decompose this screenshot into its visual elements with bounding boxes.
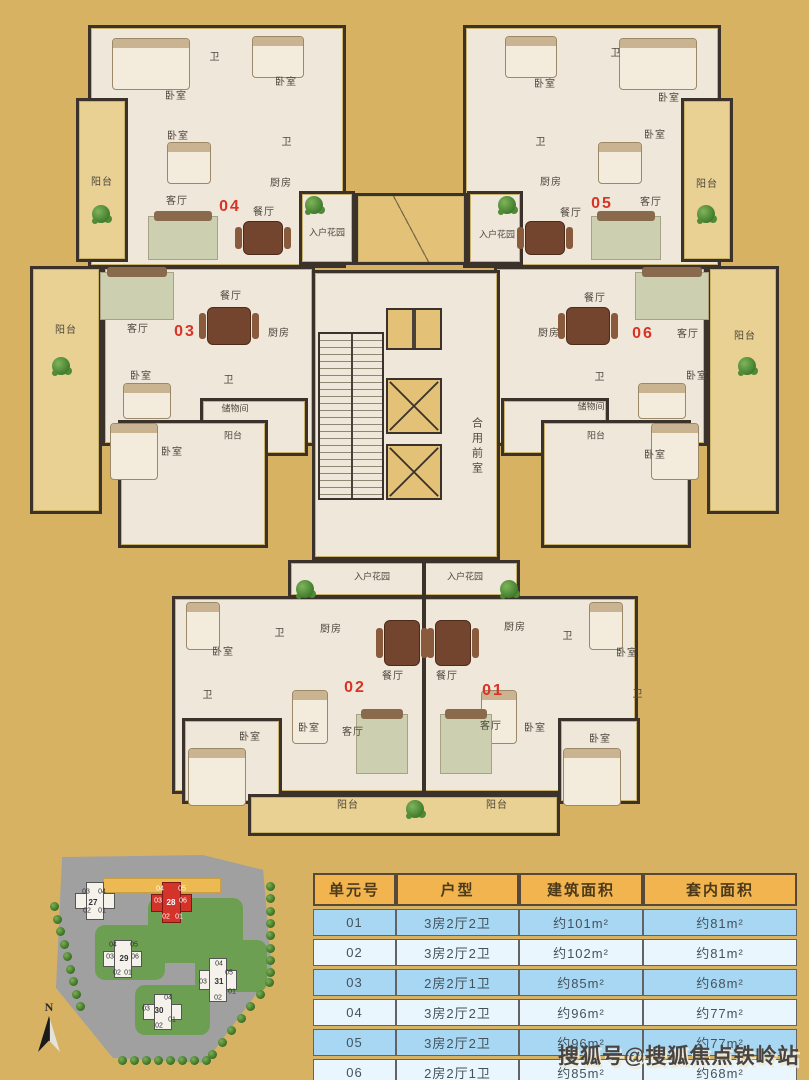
building-number: 28 [167,899,176,907]
bed [186,602,220,650]
table-cell: 3房2厅2卫 [396,909,519,936]
room-label: 餐厅 [436,672,458,682]
unit06-balcony [707,266,779,514]
table-cell: 2房2厅1卫 [396,1059,519,1080]
bed [563,748,621,806]
tree-icon [256,990,265,999]
room-label: 厨房 [268,329,290,339]
dining-table [566,307,610,345]
dining-table [525,221,565,255]
room-label: 入户花园 [447,573,483,582]
room-label: 阳台 [55,326,77,336]
tree-icon [130,1056,139,1065]
room-label: 卧室 [275,78,297,88]
room-label: 客厅 [166,197,188,207]
room-label: 卧室 [161,448,183,458]
room-label: 卧室 [239,733,261,743]
table-cell: 约101m² [519,909,643,936]
plant-icon [498,196,516,214]
plant-icon [500,580,518,598]
tree-icon [266,894,275,903]
room-label: 卫 [633,690,644,700]
compass-n-label: N [36,1000,62,1015]
building-unit-number: 05 [130,942,138,949]
tree-icon [266,968,275,977]
col-header-gross-area: 建筑面积 [519,873,643,906]
table-row: 043房2厅2卫约96m²约77m² [313,999,797,1026]
building-unit-number: 02 [162,914,170,921]
tree-icon [208,1050,217,1059]
building-number: 27 [89,899,98,907]
room-label: 卧室 [298,724,320,734]
room-label: 卧室 [644,451,666,461]
room-label: 客厅 [640,198,662,208]
table-cell: 06 [313,1059,396,1080]
building-number: 30 [155,1007,164,1015]
room-label: 阳台 [224,432,242,441]
compass-north-icon: N [36,1000,62,1052]
room-label: 厨房 [504,623,526,633]
building-unit-number: 02 [113,970,121,977]
table-row: 032房2厅1卫约85m²约68m² [313,969,797,996]
tree-icon [66,965,75,974]
tree-icon [265,978,274,987]
room-label: 客厅 [127,325,149,335]
bed [505,36,557,78]
living-room-rug [100,272,174,320]
building-unit-number: 03 [199,979,207,986]
tree-icon [218,1038,227,1047]
bed [112,38,190,90]
building-unit-number: 04 [109,942,117,949]
elevator-x-icon [388,380,440,432]
room-label: 卧室 [165,92,187,102]
room-label: 厨房 [320,625,342,635]
room-label: 阳台 [486,801,508,811]
table-cell: 3房2厅2卫 [396,999,519,1026]
compass-arrow [36,1016,62,1052]
room-label: 客厅 [480,722,502,732]
building-unit-number: 03 [142,1006,150,1013]
building-unit-number: 04 [164,995,172,1002]
room-label: 卫 [210,53,221,63]
tree-icon [142,1056,151,1065]
building-unit-number: 05 [225,970,233,977]
ramp-area [355,193,467,265]
dining-table [207,307,251,345]
dining-table [384,620,420,666]
tree-icon [118,1056,127,1065]
table-cell: 03 [313,969,396,996]
room-label: 阳台 [734,332,756,342]
room-label: 客厅 [342,728,364,738]
ramp-line [358,196,464,262]
unit-number-label: 02 [344,680,366,696]
unit03-balcony [30,266,102,514]
table-cell: 约77m² [643,999,797,1026]
room-label: 卧室 [524,724,546,734]
room-label: 卧室 [130,372,152,382]
plant-icon [305,196,323,214]
building-unit-number: 06 [131,954,139,961]
room-label: 入户花园 [479,231,515,240]
elevator-2 [386,444,442,500]
dining-table [435,620,471,666]
tree-icon [53,915,62,924]
entry-garden-lower [288,560,520,598]
plant-icon [738,357,756,375]
plant-icon [296,580,314,598]
tree-icon [266,944,275,953]
tree-icon [72,990,81,999]
room-label: 厨房 [540,178,562,188]
bed [123,383,171,419]
building-unit-number: 03 [106,954,114,961]
col-header-unit-number: 单元号 [313,873,396,906]
building-unit-number: 01 [98,908,106,915]
elevator-lobby [386,308,442,350]
tree-icon [154,1056,163,1065]
room-label: 卫 [595,373,606,383]
table-cell: 约85m² [519,969,643,996]
table-cell: 2房2厅1卫 [396,969,519,996]
room-label: 餐厅 [253,208,275,218]
unit-number-label: 03 [174,324,196,340]
living-room-rug [356,714,408,774]
table-cell: 约81m² [643,909,797,936]
building-unit-number: 02 [83,908,91,915]
elevator-1 [386,378,442,434]
table-cell: 3房2厅2卫 [396,1029,519,1056]
building-unit-number: 04 [215,961,223,968]
tree-icon [266,956,275,965]
tree-icon [266,931,275,940]
stairs [318,332,384,500]
unit-number-label: 04 [219,199,241,215]
room-label: 合用前室 [471,417,482,477]
table-row: 013房2厅2卫约101m²约81m² [313,909,797,936]
tree-icon [178,1056,187,1065]
table-cell: 04 [313,999,396,1026]
tree-icon [237,1014,246,1023]
tree-icon [63,952,72,961]
building-unit-number: 04 [156,886,164,893]
floorplan-page: 卧室卧室卧室卫卫阳台客厅厨房餐厅04入户花园卧室卧室卧室卫卫阳台客厅厨房餐厅05… [0,0,809,1080]
units-divider-wall [422,560,426,794]
room-label: 卧室 [616,649,638,659]
building-number: 29 [120,955,129,963]
table-cell: 约96m² [519,999,643,1026]
room-label: 卧室 [534,80,556,90]
building-unit-number: 06 [179,898,187,905]
building-unit-number: 02 [155,1023,163,1030]
table-cell: 05 [313,1029,396,1056]
building-unit-number: 03 [154,898,162,905]
plant-icon [406,800,424,818]
bed [598,142,642,184]
col-header-interior-area: 套内面积 [643,873,797,906]
tree-icon [246,1002,255,1011]
table-cell: 01 [313,909,396,936]
room-label: 入户花园 [309,229,345,238]
living-room-rug [591,216,661,260]
room-label: 储物间 [577,403,604,412]
plant-icon [697,205,715,223]
unit-number-label: 06 [632,326,654,342]
room-label: 卫 [563,632,574,642]
room-label: 阳台 [91,178,113,188]
watermark: 搜狐号@搜狐焦点铁岭站 [558,1040,803,1070]
building-unit-number: 01 [124,970,132,977]
lower-balcony-strip [248,794,560,836]
tree-icon [266,907,275,916]
room-label: 卫 [224,376,235,386]
tree-icon [60,940,69,949]
building-unit-number: 01 [228,989,236,996]
building-unit-number: 04 [98,889,106,896]
table-header-row: 单元号 户型 建筑面积 套内面积 [313,873,797,906]
room-label: 卧室 [644,131,666,141]
building-unit-number: 03 [82,889,90,896]
compass-arrow-dark [38,1016,49,1052]
bed [292,690,328,744]
room-label: 卧室 [589,735,611,745]
room-label: 卫 [282,138,293,148]
room-label: 卫 [536,138,547,148]
room-label: 卧室 [212,648,234,658]
living-room-rug [148,216,218,260]
bed [110,423,158,480]
tree-icon [190,1056,199,1065]
room-label: 卫 [611,49,622,59]
room-label: 阳台 [696,180,718,190]
building-unit-number: 01 [175,914,183,921]
living-room-rug [635,272,709,320]
room-label: 餐厅 [220,292,242,302]
unit-number-label: 01 [482,683,504,699]
room-label: 入户花园 [354,573,390,582]
room-label: 储物间 [221,405,248,414]
room-label: 餐厅 [584,294,606,304]
bed [188,748,246,806]
tree-icon [266,919,275,928]
room-label: 餐厅 [560,209,582,219]
room-label: 卧室 [686,372,708,382]
room-label: 厨房 [270,179,292,189]
unit-number-label: 05 [591,196,613,212]
room-label: 阳台 [337,801,359,811]
room-label: 卫 [203,691,214,701]
elevator-x-icon [388,446,440,498]
tree-icon [266,882,275,891]
bed [638,383,686,419]
room-label: 卧室 [167,132,189,142]
building-number: 31 [215,978,224,986]
building-unit-number: 05 [178,886,186,893]
bed [589,602,623,650]
room-label: 厨房 [538,329,560,339]
room-label: 卫 [275,629,286,639]
building-unit-number: 01 [168,1017,176,1024]
tree-icon [227,1026,236,1035]
table-row: 023房2厅2卫约102m²约81m² [313,939,797,966]
compass-arrow-light [49,1016,60,1052]
bed [167,142,211,184]
table-cell: 约81m² [643,939,797,966]
room-label: 卧室 [658,94,680,104]
bed [252,36,304,78]
room-label: 阳台 [587,432,605,441]
table-cell: 约68m² [643,969,797,996]
tree-icon [50,902,59,911]
table-cell: 3房2厅2卫 [396,939,519,966]
table-cell: 约102m² [519,939,643,966]
tree-icon [166,1056,175,1065]
plant-icon [92,205,110,223]
plant-icon [52,357,70,375]
bed [619,38,697,90]
col-header-layout: 户型 [396,873,519,906]
building-unit-number: 02 [214,995,222,1002]
room-label: 餐厅 [382,672,404,682]
room-label: 客厅 [677,330,699,340]
table-cell: 02 [313,939,396,966]
tree-icon [76,1002,85,1011]
dining-table [243,221,283,255]
